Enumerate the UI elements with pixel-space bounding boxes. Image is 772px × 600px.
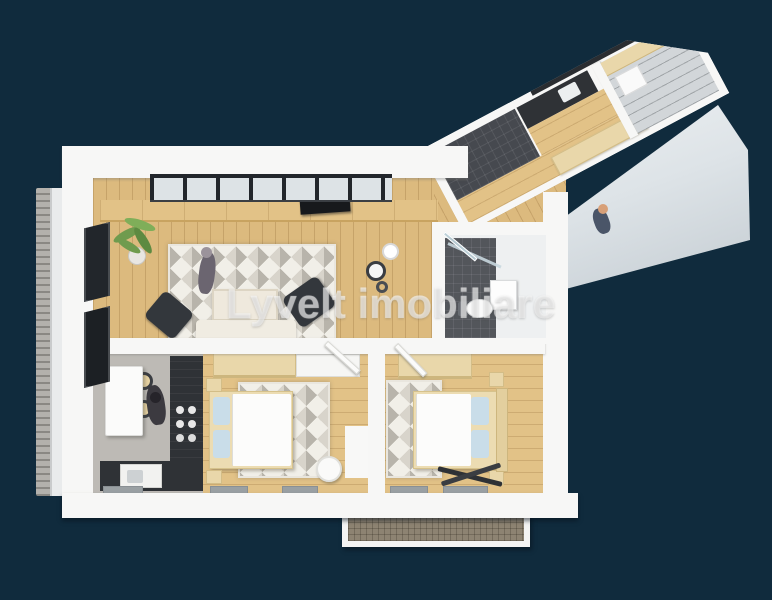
plant-leaves bbox=[108, 216, 160, 260]
bedroom1-stool bbox=[316, 456, 342, 482]
burner bbox=[176, 406, 184, 414]
bed2-pillow-top bbox=[471, 397, 489, 425]
person-dining-head bbox=[150, 392, 161, 403]
left-wall-window-2 bbox=[84, 306, 110, 388]
watermark-text: Lyvelt imobiliare bbox=[226, 280, 556, 328]
wall-bottom bbox=[62, 493, 578, 518]
wall-between-bedrooms bbox=[368, 352, 385, 494]
bed1-pillow-top bbox=[213, 397, 230, 425]
bed1-pillow-bottom bbox=[213, 430, 230, 458]
bed1-nightstand-top bbox=[206, 378, 222, 392]
bathroom-wall-top bbox=[432, 222, 558, 235]
wall-clock bbox=[366, 261, 386, 281]
bedroom1-wardrobe bbox=[213, 352, 296, 378]
bed2-headboard bbox=[496, 388, 508, 472]
person-living-room-head bbox=[201, 247, 212, 258]
bed1-nightstand-bottom bbox=[206, 470, 222, 484]
bed2-duvet bbox=[416, 394, 471, 466]
bathroom-wall-bottom bbox=[432, 338, 558, 344]
wing-sink bbox=[557, 81, 581, 103]
burner bbox=[176, 420, 184, 428]
sink-basin bbox=[127, 470, 143, 483]
bed2-nightstand-top bbox=[489, 372, 504, 387]
floor-plan-scene: Lyvelt imobiliare bbox=[0, 0, 772, 600]
burner bbox=[188, 420, 196, 428]
burner bbox=[188, 434, 196, 442]
bedroom1-dresser bbox=[345, 426, 368, 478]
dining-table bbox=[105, 366, 143, 436]
pendant-lamp bbox=[382, 243, 399, 260]
top-wall-windows bbox=[150, 174, 392, 202]
person-kitchen-head bbox=[598, 204, 608, 214]
burner bbox=[176, 434, 184, 442]
bed1-duvet bbox=[232, 394, 291, 466]
kitchen-sink-cabinet bbox=[120, 464, 162, 488]
bed2-pillow-bottom bbox=[471, 430, 489, 458]
left-wall-window-1 bbox=[84, 222, 110, 302]
burner bbox=[188, 406, 196, 414]
cooktop bbox=[173, 402, 201, 446]
